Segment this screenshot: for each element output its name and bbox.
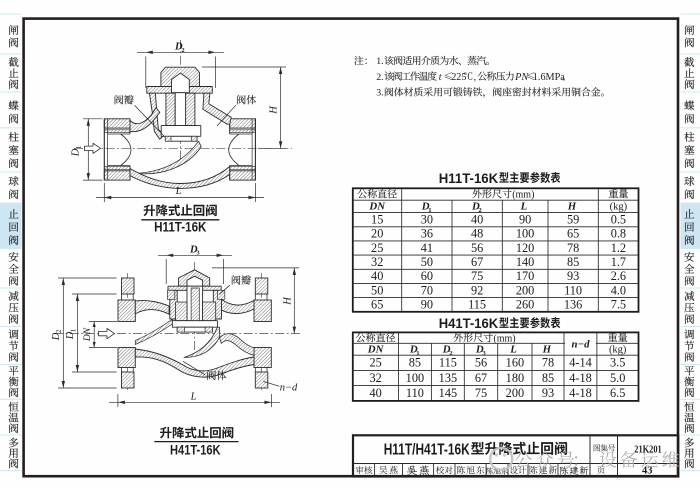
svg-text:78: 78 (542, 356, 554, 370)
svg-text:25: 25 (371, 241, 383, 255)
svg-text:85: 85 (567, 255, 579, 269)
svg-text:180: 180 (506, 371, 524, 385)
svg-text:110: 110 (406, 386, 424, 400)
svg-text:6.5: 6.5 (610, 386, 625, 400)
svg-text:170: 170 (516, 269, 534, 283)
svg-text:48: 48 (471, 227, 483, 241)
svg-text:140: 140 (516, 255, 534, 269)
svg-text:4-18: 4-18 (569, 386, 592, 400)
svg-text:(mm): (mm) (512, 190, 534, 201)
svg-text:n−d: n−d (572, 338, 591, 350)
svg-text:41: 41 (421, 241, 433, 255)
svg-text:67: 67 (471, 255, 483, 269)
svg-text:L: L (509, 344, 517, 356)
svg-text:115: 115 (468, 298, 486, 312)
svg-text:75: 75 (475, 386, 487, 400)
svg-text:3.: 3. (376, 88, 383, 99)
svg-text:PN: PN (514, 72, 529, 83)
svg-text:DN: DN (83, 327, 93, 342)
svg-text:H: H (542, 344, 552, 356)
svg-text:92: 92 (471, 283, 483, 297)
svg-text:H11T/H41T-16K: H11T/H41T-16K (384, 441, 471, 458)
svg-text:L: L (190, 391, 197, 402)
svg-text:32: 32 (371, 255, 383, 269)
svg-text:56: 56 (475, 356, 487, 370)
svg-text:1: 1 (75, 145, 83, 149)
svg-text:40: 40 (471, 213, 483, 227)
svg-text:H11T-16K: H11T-16K (439, 170, 499, 186)
svg-text:100: 100 (406, 371, 424, 385)
svg-text:260: 260 (516, 298, 534, 312)
svg-text:3.5: 3.5 (610, 356, 625, 370)
svg-text:,: , (474, 72, 477, 83)
svg-text:120: 120 (516, 241, 534, 255)
svg-text:160: 160 (506, 356, 524, 370)
svg-text:4-14: 4-14 (569, 356, 592, 370)
svg-text:40: 40 (369, 386, 381, 400)
svg-text:H41T-16K: H41T-16K (170, 442, 221, 457)
svg-text:135: 135 (439, 371, 457, 385)
svg-text:30: 30 (421, 213, 433, 227)
svg-text:100: 100 (516, 227, 534, 241)
svg-text:200: 200 (516, 283, 534, 297)
svg-text:200: 200 (506, 386, 524, 400)
svg-text:1.6MPa: 1.6MPa (533, 72, 565, 83)
svg-text:(kg): (kg) (609, 345, 627, 356)
svg-text:H: H (269, 105, 280, 115)
svg-text:93: 93 (542, 386, 554, 400)
svg-text:85: 85 (409, 356, 421, 370)
svg-text:H41T-16K: H41T-16K (439, 315, 499, 331)
svg-text:n−d: n−d (280, 382, 298, 393)
svg-text:60: 60 (421, 269, 433, 283)
svg-text:H: H (282, 296, 293, 306)
svg-text:2: 2 (181, 47, 184, 54)
svg-text:67: 67 (475, 371, 487, 385)
svg-text:70: 70 (421, 283, 433, 297)
svg-text:2.: 2. (376, 72, 383, 83)
svg-text:50: 50 (371, 283, 383, 297)
svg-text:(kg): (kg) (610, 202, 628, 213)
svg-text:136: 136 (564, 298, 582, 312)
svg-text:2: 2 (55, 329, 63, 333)
svg-text:21K201: 21K201 (634, 444, 662, 456)
svg-text:1.2: 1.2 (611, 241, 626, 255)
svg-text:36: 36 (421, 227, 433, 241)
svg-text:H11T-16K: H11T-16K (154, 220, 207, 235)
svg-text:40: 40 (371, 269, 383, 283)
svg-text:1: 1 (69, 328, 77, 332)
svg-text:50: 50 (421, 255, 433, 269)
svg-text:59: 59 (567, 213, 579, 227)
svg-text:25: 25 (369, 356, 381, 370)
svg-text:90: 90 (519, 213, 531, 227)
svg-text:4.0: 4.0 (611, 283, 626, 297)
svg-text:2.6: 2.6 (611, 269, 626, 283)
svg-text:93: 93 (567, 269, 579, 283)
svg-text:1.7: 1.7 (611, 255, 626, 269)
svg-text:90: 90 (421, 298, 433, 312)
svg-text:0.8: 0.8 (611, 227, 626, 241)
svg-text:4-18: 4-18 (569, 371, 592, 385)
svg-text:65: 65 (371, 298, 383, 312)
svg-text:65: 65 (567, 227, 579, 241)
svg-text:85: 85 (542, 371, 554, 385)
svg-text:115: 115 (439, 356, 457, 370)
svg-text:75: 75 (471, 269, 483, 283)
svg-text:H: H (567, 201, 577, 213)
svg-text:DN: DN (367, 344, 385, 356)
svg-text:145: 145 (439, 386, 457, 400)
svg-text:15: 15 (371, 213, 383, 227)
svg-text:5.0: 5.0 (610, 371, 625, 385)
svg-text:0.5: 0.5 (611, 213, 626, 227)
svg-text:DN: DN (368, 201, 386, 213)
svg-text:20: 20 (371, 227, 383, 241)
svg-text:56: 56 (471, 241, 483, 255)
svg-text:7.5: 7.5 (611, 298, 626, 312)
svg-text:L: L (520, 201, 528, 213)
svg-text:32: 32 (369, 371, 381, 385)
svg-text:L: L (175, 186, 182, 197)
svg-text:110: 110 (564, 283, 582, 297)
svg-text:78: 78 (567, 241, 579, 255)
svg-text:1.: 1. (376, 56, 383, 67)
